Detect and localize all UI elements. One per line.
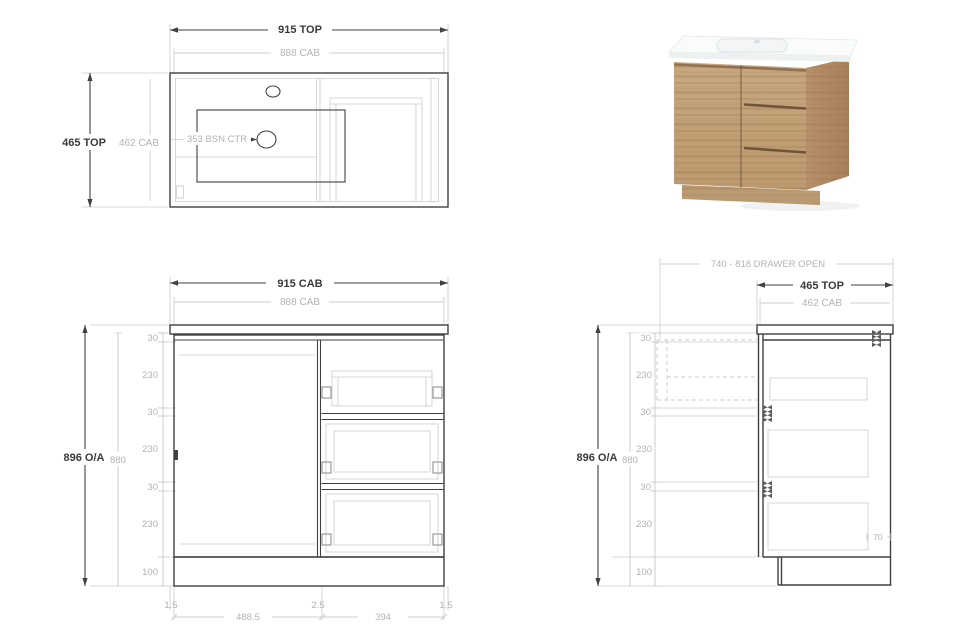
segment-tick-column (158, 333, 168, 586)
bottom-dim-line (171, 614, 447, 620)
dim-label-880: 880 (110, 455, 126, 466)
bottom-488_5: 488.5 (236, 612, 260, 623)
arrow-down (82, 578, 87, 586)
runner-right (433, 462, 442, 473)
dim-label-basin-centre: 353 BSN CTR (187, 134, 247, 145)
arrow-down (87, 199, 92, 207)
front-drawer-2 (322, 424, 442, 479)
arrow-right (440, 27, 448, 33)
tap-hole (266, 86, 280, 97)
drawer-box (334, 431, 430, 472)
dim-label-888-cab: 888 CAB (280, 48, 320, 59)
bottom-2_5: 2.5 (311, 600, 324, 611)
dim-label-880-side: 880 (622, 455, 638, 466)
seg-30-1: 30 (147, 333, 158, 344)
arrow-left (757, 282, 765, 288)
hinge-plate-plan (177, 186, 184, 198)
cabinet-side-grain (806, 58, 849, 190)
side-drawer-box-3 (768, 503, 868, 550)
open-drawer-ghost (657, 340, 758, 400)
front-drawer-3 (322, 494, 442, 552)
bottom-1_5-right: 1.5 (439, 600, 452, 611)
dim-label-462-side: 462 CAB (802, 298, 842, 309)
seg-30-3: 30 (640, 482, 651, 493)
arrow-right (440, 280, 448, 286)
bottom-1_5-left: 1.5 (164, 600, 177, 611)
dim-label-462-cab: 462 CAB (119, 138, 159, 149)
arrow-left (170, 280, 178, 286)
front-kickboard (174, 557, 444, 586)
dim-label-915-cab: 915 CAB (277, 278, 322, 290)
dim-label-896: 896 O/A (64, 452, 105, 464)
runner-right (433, 387, 442, 398)
front-counter-slab (170, 325, 448, 334)
front-drawer-1 (322, 371, 442, 406)
arrow-up (87, 73, 92, 81)
clip-glyph-mid (763, 405, 772, 422)
dim-label-465-top: 465 TOP (62, 137, 106, 149)
runner-left (322, 534, 331, 545)
arrow-up (595, 325, 600, 333)
photo-tap-hole (754, 40, 760, 44)
front-view: 915 CAB 888 CAB (59, 274, 453, 623)
drawer-divider-2 (322, 484, 445, 490)
vanity-drawing-sheet: 915 TOP 888 CAB 465 TOP 462 CAB 353 BSN … (0, 0, 974, 643)
door-hinge-mark (174, 450, 178, 460)
side-drawer-box-1 (770, 378, 867, 400)
side-extension-lines (598, 258, 893, 586)
arrow-down (595, 578, 600, 586)
cabinet-front-grain (674, 62, 806, 190)
top-view: 915 TOP 888 CAB 465 TOP 462 CAB 353 BSN … (59, 21, 448, 207)
seg-230-1: 230 (142, 370, 158, 381)
front-door-drawer-divider (318, 340, 321, 557)
drawer-box-lines (332, 377, 432, 406)
arrow-right (885, 282, 893, 288)
seg-230-2: 230 (636, 444, 652, 455)
seg-230-3: 230 (636, 519, 652, 530)
dim-label-70: 70 (873, 532, 883, 542)
seg-30-3: 30 (147, 482, 158, 493)
bottom-394: 394 (375, 612, 391, 623)
seg-230-1: 230 (636, 370, 652, 381)
seg-100: 100 (142, 567, 158, 578)
front-cabinet-outline (174, 335, 444, 557)
drawer-front (326, 424, 438, 479)
seg-100: 100 (636, 567, 652, 578)
runner-right (433, 534, 442, 545)
vanity-technical-drawing: 915 TOP 888 CAB 465 TOP 462 CAB 353 BSN … (0, 0, 974, 643)
dim-label-drawer-open: 740 - 818 DRAWER OPEN (711, 259, 825, 270)
drawer-box (332, 371, 432, 406)
seg-230-3: 230 (142, 519, 158, 530)
leader-arrow (251, 138, 257, 142)
seg-30-2: 30 (640, 407, 651, 418)
dim-label-896-side: 896 O/A (577, 452, 618, 464)
runner-left (322, 387, 331, 398)
basin-bowl (717, 39, 787, 52)
dim-label-888-inner: 888 CAB (280, 297, 320, 308)
seg-230-2: 230 (142, 444, 158, 455)
arrow-up (82, 325, 87, 333)
seg-30-1: 30 (640, 333, 651, 344)
side-view: 740 - 818 DRAWER OPEN 465 TOP 462 CAB 70 (572, 257, 893, 586)
side-cabinet-profile (759, 334, 892, 585)
drawer-box (334, 501, 430, 545)
clip-glyph-low (763, 481, 772, 498)
top-view-extension-lines (82, 24, 448, 207)
basin-waste (257, 131, 276, 148)
product-photo (669, 36, 860, 211)
drawer-divider-1 (322, 414, 445, 420)
door-panel-lines (179, 355, 315, 544)
seg-30-2: 30 (147, 407, 158, 418)
drawer-front (326, 494, 438, 552)
basin-outline (197, 110, 345, 182)
side-drawer-box-2 (768, 430, 868, 477)
dim-label-465-side: 465 TOP (800, 280, 844, 292)
dim-label-915-top: 915 TOP (278, 24, 322, 36)
runner-left (322, 462, 331, 473)
arrow-left (170, 27, 178, 33)
